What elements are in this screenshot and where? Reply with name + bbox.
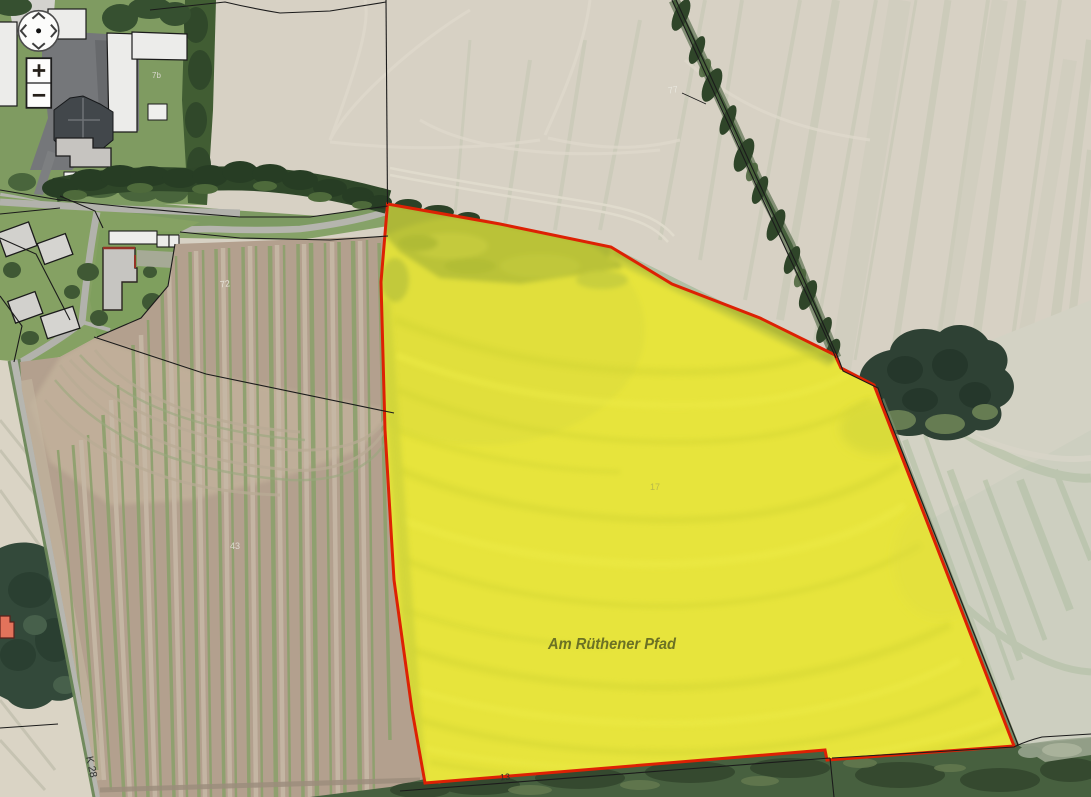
svg-text:77: 77 (667, 84, 679, 96)
svg-text:17: 17 (650, 482, 660, 492)
svg-text:7b: 7b (152, 71, 161, 80)
svg-text:72: 72 (219, 278, 230, 289)
svg-text:13: 13 (500, 772, 511, 783)
svg-text:43: 43 (230, 541, 240, 551)
svg-text:Am Rüthener Pfad: Am Rüthener Pfad (547, 636, 677, 653)
